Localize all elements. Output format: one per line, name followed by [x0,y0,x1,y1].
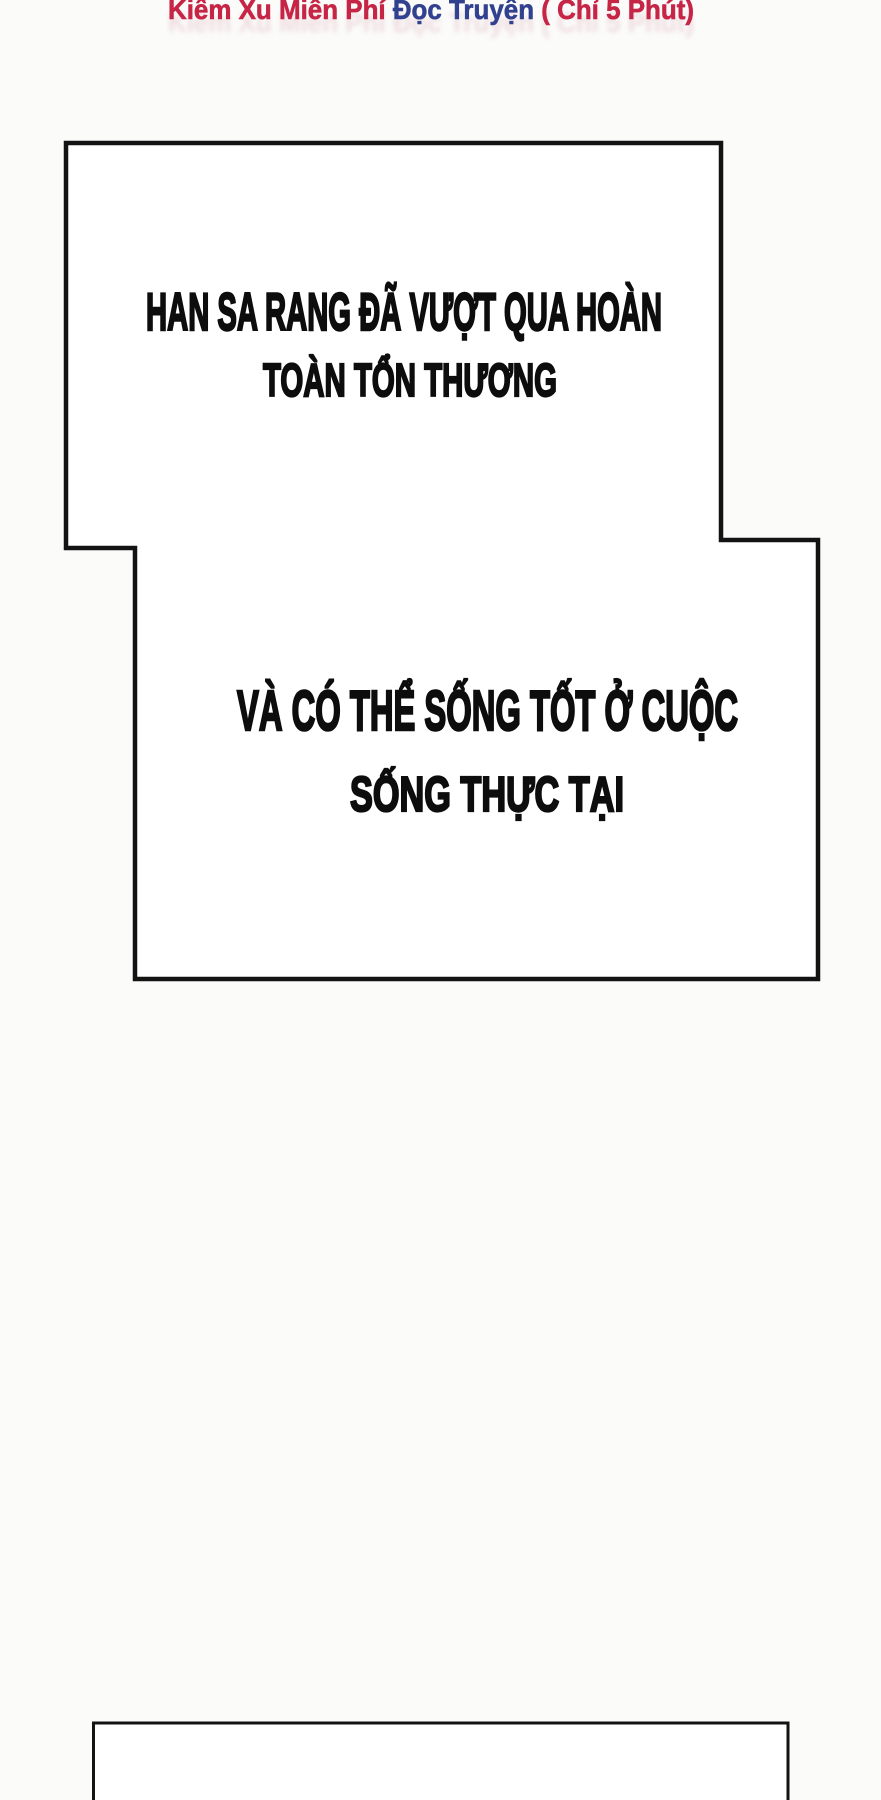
svg-text:VÀ CÓ THỂ SỐNG TỐT Ở CUỘC: VÀ CÓ THỂ SỐNG TỐT Ở CUỘC [237,678,738,743]
svg-text:HAN SA RANG ĐÃ VƯỢT QUA HOÀN: HAN SA RANG ĐÃ VƯỢT QUA HOÀN [146,282,662,342]
svg-text:Kiếm Xu Miễn Phí Đọc Truyện (: Kiếm Xu Miễn Phí Đọc Truyện ( Chỉ 5 Phút… [168,0,694,25]
svg-text:SỐNG THỰC TẠI: SỐNG THỰC TẠI [350,767,624,822]
svg-text:TOÀN TỔN THƯƠNG: TOÀN TỔN THƯƠNG [263,354,557,406]
